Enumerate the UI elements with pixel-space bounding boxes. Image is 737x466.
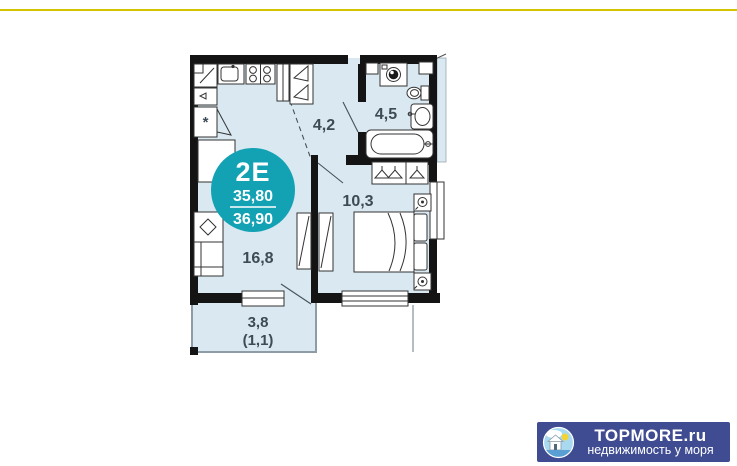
pillow (414, 243, 427, 270)
balcony-reduced-area-label: (1,1) (243, 332, 274, 349)
nightstand-lamp-icon (414, 194, 431, 211)
corner-counter (194, 64, 217, 87)
bedroom-side-window (430, 182, 444, 239)
hallway-area-label: 4,2 (313, 117, 335, 134)
watermark-brand: TOPMORE.ru (594, 427, 706, 445)
bedroom-window (342, 291, 408, 306)
wall-bathroom-left-upper (358, 64, 366, 102)
wall-bedroom-bottom-right (407, 293, 440, 303)
watermark: TOPMORE.ru недвижимость у моря (537, 422, 730, 462)
washing-machine-icon (380, 63, 407, 86)
living-window (242, 291, 284, 306)
balcony (190, 300, 413, 355)
nightstand-lamp-icon (414, 273, 431, 290)
bathtub-icon (366, 130, 433, 158)
dishwasher (194, 88, 217, 105)
entry-closet-doors (290, 64, 313, 104)
floorplan-drawing: * (0, 0, 737, 466)
kitchen-sink (218, 64, 244, 84)
corner-sofa (194, 212, 223, 276)
living-area-label: 16,8 (242, 250, 273, 267)
tall-cabinet (277, 64, 289, 101)
wall-living-bedroom (311, 158, 318, 303)
watermark-text: TOPMORE.ru недвижимость у моря (575, 427, 726, 458)
balcony-area-label: 3,8 (248, 314, 269, 331)
watermark-tagline: недвижимость у моря (587, 444, 713, 457)
bedroom-area-label: 10,3 (342, 193, 373, 210)
stove (246, 64, 275, 84)
fridge-snowflake-mark: * (203, 114, 209, 131)
bathroom-shelf (366, 63, 378, 74)
pillow (414, 214, 427, 241)
sliding-wardrobe (319, 213, 333, 271)
bathroom-sink-icon (408, 104, 433, 129)
balcony-corner (190, 347, 198, 355)
unit-type-label: 2E (235, 157, 270, 187)
hall-wardrobe (372, 162, 428, 184)
wall-top-left (190, 55, 348, 64)
toilet-icon (407, 86, 429, 100)
wall-living-bottom (190, 293, 243, 303)
house-by-sea-icon (542, 426, 575, 459)
unit-area-main: 35,80 (233, 188, 273, 205)
unit-badge: 2E 35,80 36,90 (211, 148, 295, 232)
duct-shaft (419, 62, 433, 74)
unit-area-total: 36,90 (233, 211, 273, 228)
listing-image: * (0, 0, 737, 466)
bathroom-area-label: 4,5 (375, 106, 397, 123)
sliding-wardrobe (297, 213, 311, 269)
exterior-strip (437, 58, 446, 162)
wall-bathroom-left-lower (358, 132, 366, 158)
